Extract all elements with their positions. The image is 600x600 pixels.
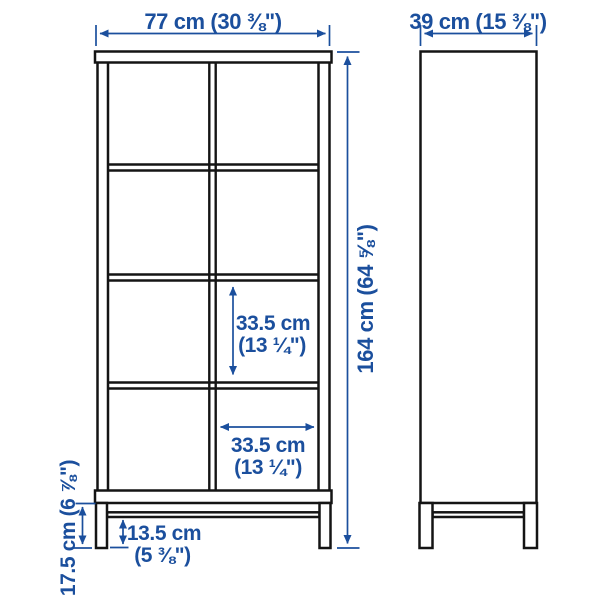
dimension-rail-clearance: 13.5 cm (5 ⅜"): [110, 520, 201, 567]
depth-label: 39 cm (15 ⅜"): [409, 9, 546, 34]
dimension-overall-width: 77 cm (30 ⅜"): [96, 9, 330, 46]
rail-clearance-label-line2: (5 ⅜"): [134, 544, 191, 567]
leg-height-label: 17.5 cm (6 ⅞"): [57, 460, 80, 596]
dimension-overall-height: 164 cm (64 ⅝"): [337, 52, 378, 548]
width-label: 77 cm (30 ⅜"): [144, 9, 281, 34]
dimension-inner-cell-height: 33.5 cm (13 ¼"): [233, 287, 310, 375]
dimension-depth: 39 cm (15 ⅜"): [409, 9, 546, 46]
side-view: [420, 52, 538, 549]
front-base-rail: [107, 512, 320, 517]
front-right-leg: [320, 503, 331, 548]
dimension-inner-cell-width: 33.5 cm (13 ¼"): [221, 427, 315, 479]
right-side-panel: [319, 62, 330, 491]
front-left-leg: [96, 503, 107, 548]
rail-clearance-label-line1: 13.5 cm: [127, 522, 201, 545]
side-left-leg: [420, 503, 433, 548]
base-panel: [95, 491, 332, 504]
top-panel: [95, 52, 332, 63]
height-label: 164 cm (64 ⅝"): [353, 224, 378, 373]
side-right-leg: [524, 503, 537, 548]
dimension-diagram: 77 cm (30 ⅜") 39 cm (15 ⅜") 164 cm (64 ⅝…: [0, 0, 600, 600]
center-divider: [209, 63, 215, 491]
left-side-panel: [98, 62, 109, 491]
inner-height-label-line1: 33.5 cm: [236, 312, 310, 335]
inner-width-label-line1: 33.5 cm: [231, 434, 305, 457]
side-base-rail: [433, 512, 525, 517]
inner-width-label-line2: (13 ¼"): [234, 456, 302, 479]
inner-height-label-line2: (13 ¼"): [238, 334, 306, 357]
dimension-leg-height: 17.5 cm (6 ⅞"): [57, 460, 96, 596]
product-dimension-illustration: 77 cm (30 ⅜") 39 cm (15 ⅜") 164 cm (64 ⅝…: [0, 0, 600, 600]
side-body: [421, 52, 537, 504]
